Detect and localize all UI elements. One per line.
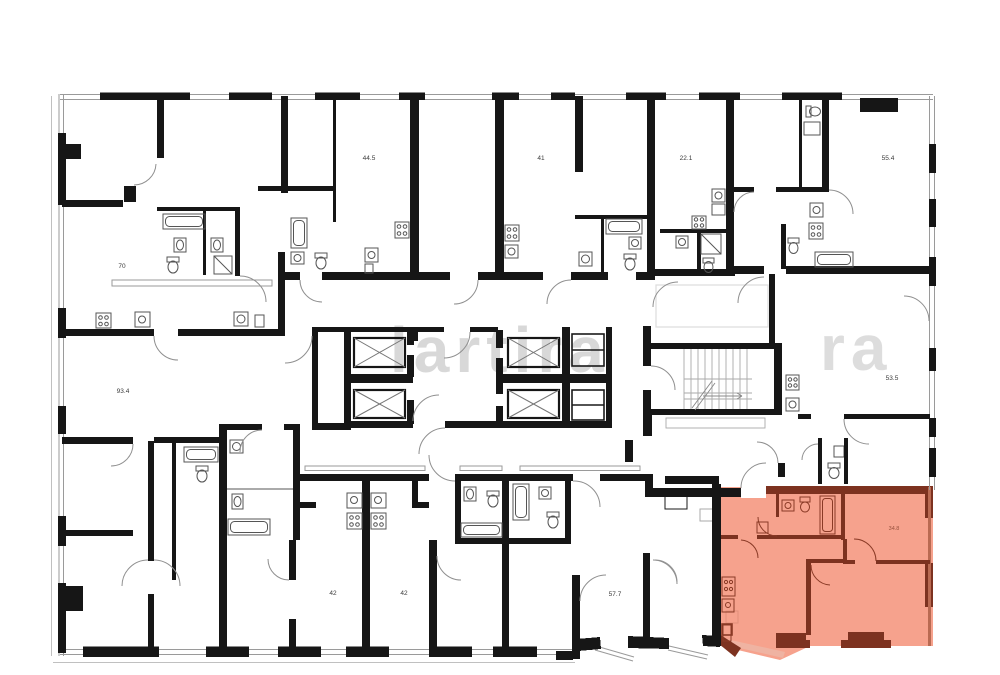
svg-text:57.7: 57.7 [609,591,622,598]
svg-text:42: 42 [400,590,408,597]
svg-text:53.5: 53.5 [886,375,899,382]
svg-text:44.5: 44.5 [363,155,376,162]
svg-text:22.1: 22.1 [680,155,693,162]
svg-text:93.4: 93.4 [117,388,130,395]
svg-text:70: 70 [118,263,126,270]
svg-text:55.4: 55.4 [882,155,895,162]
svg-text:ra: ra [820,312,893,384]
svg-text:42: 42 [329,590,337,597]
svg-text:41: 41 [537,155,545,162]
svg-text:34.8: 34.8 [889,526,900,532]
